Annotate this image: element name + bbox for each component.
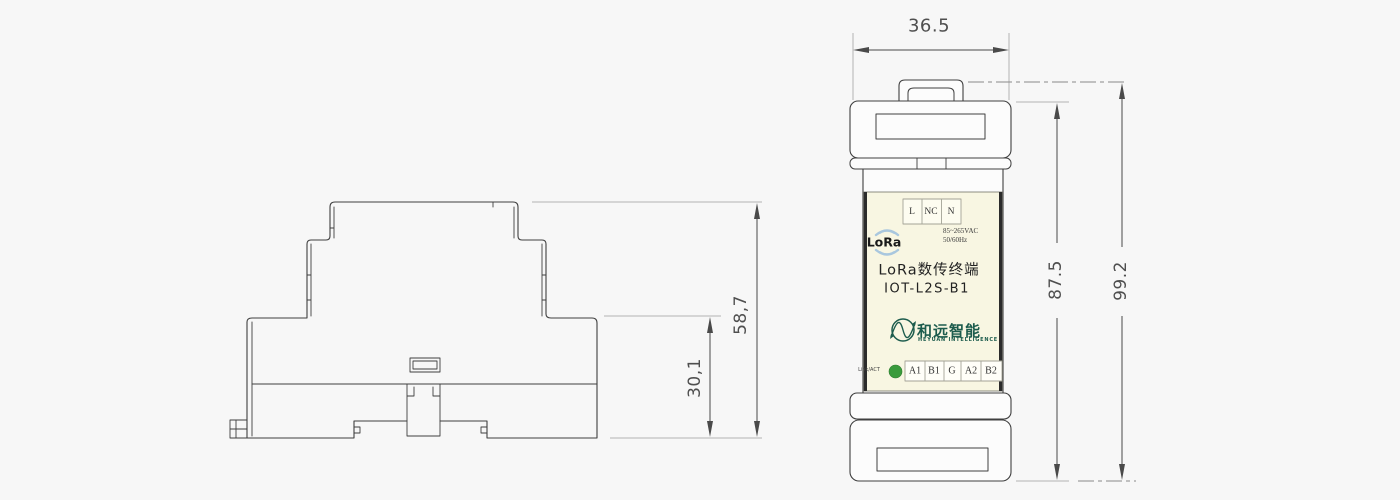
terminal-label-b2: B2 (985, 366, 997, 377)
arrow (1054, 464, 1060, 480)
terminal-label-a1: A1 (909, 366, 921, 377)
extension-lines (532, 202, 762, 438)
led-label: Link/ACT (858, 367, 880, 373)
product-title: LoRa数传终端 (878, 259, 979, 280)
left-foot (230, 420, 247, 438)
dim-total-height-front-value: 99.2 (1111, 261, 1131, 301)
side-view-dimensions (532, 202, 762, 438)
arrow (1054, 103, 1060, 119)
front-view-drawing (850, 80, 1011, 481)
side-wall-seams (252, 202, 546, 436)
terminal-label-l: L (909, 207, 915, 217)
din-slider-latch (410, 358, 440, 372)
side-profile-path (247, 202, 597, 438)
label-edge-left (864, 192, 867, 391)
din-clip-tab (407, 384, 440, 436)
linework-layer (0, 0, 1400, 500)
dim-body-height-value: 87.5 (1046, 260, 1066, 300)
terminal-label-nc: NC (924, 207, 937, 217)
power-rating-line1: 85~265VAC (943, 227, 978, 236)
top-cover-window (876, 114, 985, 139)
top-hinge-band (850, 158, 1011, 169)
bottom-cover-window (877, 448, 988, 471)
arrow (707, 317, 713, 333)
brand-name-en: HEYUAN INTELLIGENCE (918, 337, 998, 343)
power-rating-line2: 50/60Hz (943, 236, 967, 245)
arrow (754, 203, 760, 219)
arrow (754, 421, 760, 437)
led-indicator (889, 365, 902, 378)
bottom-hinge-band (850, 393, 1011, 419)
dim-width-value: 36.5 (908, 16, 950, 37)
terminal-label-a2: A2 (965, 366, 977, 377)
dim-lower-height-side-value: 30,1 (685, 358, 705, 398)
arrow (1119, 83, 1125, 99)
terminal-label-b1: B1 (928, 366, 940, 377)
channel-hooks (354, 427, 487, 433)
side-view-drawing (230, 202, 597, 438)
lora-wordmark: LoRa (867, 235, 902, 250)
drawing-canvas: 36.5 58,7 30,1 87.5 99.2 L NC N 85~265VA… (0, 0, 1400, 500)
arrow (1119, 464, 1125, 480)
terminal-label-g: G (948, 366, 955, 377)
arrow (707, 421, 713, 437)
terminal-label-n: N (948, 207, 955, 217)
arrow (853, 47, 869, 53)
dim-total-height-side-value: 58,7 (731, 295, 751, 335)
product-model: IOT-L2S-B1 (884, 282, 970, 297)
arrow (993, 47, 1009, 53)
